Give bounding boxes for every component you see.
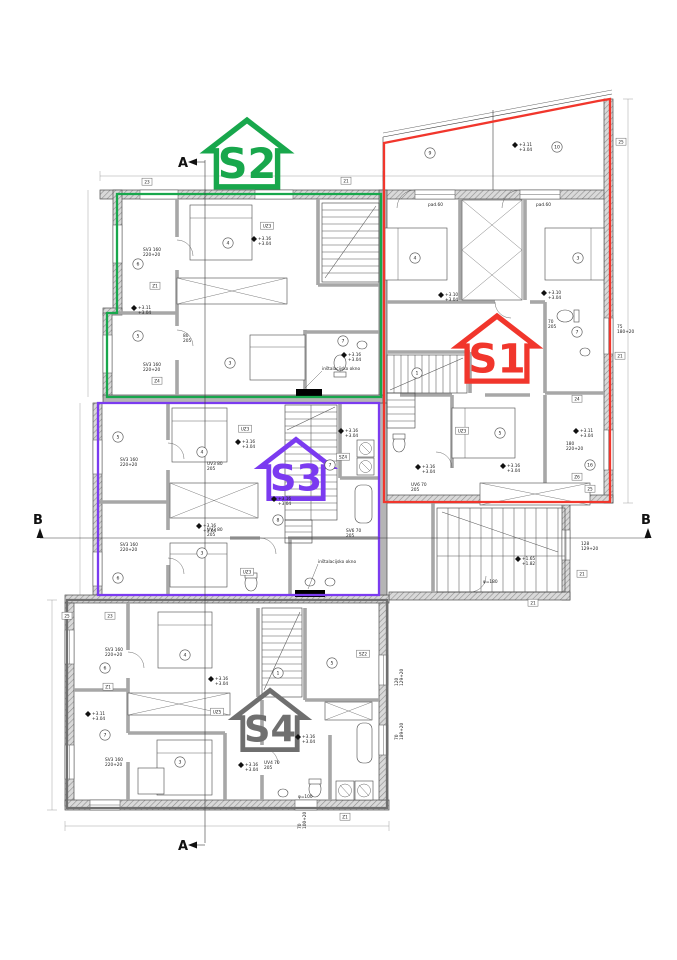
unit-marker-s4[interactable]: S4 [235, 690, 305, 750]
toilet [334, 355, 346, 377]
svg-text:S3: S3 [270, 457, 322, 500]
installation-shaft [296, 389, 322, 397]
annotation-label: φ=180 [483, 579, 498, 585]
elevation-mark-icon [131, 305, 137, 311]
toilet [393, 434, 405, 452]
bathtub [355, 485, 372, 523]
boxed-label: Z4 [154, 379, 160, 384]
annotation-label: inštalacijsko okno [318, 558, 356, 565]
room-number: 4 [201, 450, 204, 456]
room-number: 1 [277, 671, 280, 677]
wardrobe [177, 278, 287, 304]
room-number: 9 [429, 151, 432, 157]
washer [357, 458, 374, 475]
annotation-label: SV3 160220+20 [105, 647, 123, 658]
annotation-label: UV6 70205 [411, 482, 427, 493]
annotation-label: +3.16+3.04 [215, 676, 228, 687]
section-b-arrow-left [37, 528, 44, 538]
annotation-label: 75180+20 [617, 324, 635, 335]
annotation-label: +3.11+3.04 [580, 428, 593, 439]
annotation-label: UV3 80205 [207, 461, 223, 472]
annotation-label: SV3 160220+20 [120, 542, 138, 553]
washer [355, 781, 373, 800]
room-number: 3 [229, 361, 232, 367]
room-number: 7 [104, 733, 107, 739]
shower [138, 768, 164, 794]
annotation-label: +3.16+3.04 [345, 428, 358, 439]
room-number: 5 [499, 431, 502, 437]
annotation-label: SV3 160220+20 [143, 362, 161, 373]
annotation-label: +3.10+3.04 [445, 292, 458, 303]
annotation-label: +3.16+3.04 [245, 762, 258, 773]
room-number: 6 [137, 262, 140, 268]
room-number: 6 [117, 576, 120, 582]
room-number: 1 [416, 371, 419, 377]
toilet [557, 310, 579, 322]
room-number: 7 [329, 463, 332, 469]
room-number: 7 [342, 339, 345, 345]
stairs-common [437, 508, 565, 592]
annotation-label: 120129+20 [394, 668, 405, 686]
elevation-mark-icon [85, 711, 91, 717]
annotation-label: SV3 160220+20 [143, 247, 161, 258]
room-number: 5 [117, 435, 120, 441]
wardrobe [462, 200, 522, 300]
room-number: 5 [331, 661, 334, 667]
boxed-label: Z6 [574, 475, 580, 480]
annotation-label: UV3 80205 [207, 527, 223, 538]
annotation-label: SV3 160220+20 [105, 757, 123, 768]
bed [250, 335, 305, 380]
elevation-mark-icon [515, 556, 521, 562]
room-number: 8 [277, 518, 280, 524]
bathtub [357, 723, 372, 763]
svg-text:S2: S2 [218, 140, 277, 188]
washer [336, 781, 354, 800]
bed [157, 740, 212, 795]
unit-marker-s1[interactable]: S1 [458, 316, 535, 382]
boxed-label: Z1 [152, 284, 158, 289]
bed [190, 205, 252, 260]
boxed-label: 25 [587, 487, 593, 492]
annotation-label: +3.11+3.04 [138, 305, 151, 316]
elevation-mark-icon [208, 676, 214, 682]
section-a-label-top: A [178, 156, 188, 171]
sink [305, 578, 315, 586]
room-number: 4 [184, 653, 187, 659]
boxed-label: UZ3 [263, 224, 272, 229]
boxed-label: UZ3 [243, 570, 252, 575]
annotation-label: +3.16+3.04 [302, 734, 315, 745]
room-number: 10 [554, 145, 560, 151]
sink [580, 348, 590, 356]
room-number: 3 [201, 551, 204, 557]
furniture-layer [128, 190, 604, 800]
annotation-label: +3.16+3.04 [507, 463, 520, 474]
toilet [245, 573, 257, 591]
annotation-label: +1.65+1.82 [522, 556, 535, 567]
wardrobe [325, 702, 372, 720]
annotation-label: 70205 [548, 319, 556, 330]
elevation-mark-icon [235, 439, 241, 445]
boxed-label: 21 [579, 572, 585, 577]
annotation-label: +3.11+3.04 [519, 142, 532, 153]
room-number: 4 [227, 241, 230, 247]
annotation-label: 128129+20 [581, 541, 599, 552]
annotation-label: +3.16+3.04 [258, 236, 271, 247]
elevation-mark-icon [196, 523, 202, 529]
sink [278, 789, 288, 797]
section-a-arrow-top [188, 159, 197, 166]
boxed-label: 21 [617, 354, 623, 359]
elevation-mark-icon [438, 292, 444, 298]
section-b-label-left: B [33, 513, 43, 528]
annotation-label: SV3 160220+20 [120, 457, 138, 468]
stairs-s4 [262, 608, 302, 697]
boxed-label: 21 [530, 601, 536, 606]
sink [325, 578, 335, 586]
svg-text:S1: S1 [468, 334, 525, 382]
annotation-label: +3.16+3.04 [242, 439, 255, 450]
boxed-label: 25 [64, 614, 70, 619]
annotation-label: +3.16+3.04 [278, 496, 291, 507]
annotation-label: +3.16+3.04 [422, 464, 435, 475]
room-number: 6 [104, 666, 107, 672]
floor-plan-canvas: A A B B S2 S1 S3 S4 +3.11+3.04+3.16+3.04… [0, 0, 677, 960]
boxed-label: UZ3 [241, 427, 250, 432]
room-number: 5 [137, 334, 140, 340]
annotation-label: 80205 [183, 333, 191, 344]
room-number: 4 [414, 256, 417, 262]
room-number: 3 [179, 760, 182, 766]
annotation-label: 70189+20 [394, 722, 405, 740]
elevation-mark-icon [512, 142, 518, 148]
stairs-s2 [322, 203, 379, 282]
section-b-arrow-right [645, 528, 652, 538]
boxed-label: 23 [107, 614, 113, 619]
annotation-label: pad.60 [536, 202, 551, 208]
sink [357, 341, 367, 349]
section-a-arrow-bottom [188, 842, 197, 849]
boxed-label: Z1 [342, 815, 348, 820]
section-b-label-right: B [641, 513, 651, 528]
boxed-label: UZ3 [458, 429, 467, 434]
unit-marker-s3[interactable]: S3 [261, 439, 331, 499]
elevation-mark-icon [238, 762, 244, 768]
annotation-label: pad.60 [428, 202, 443, 208]
elevation-mark-icon [541, 290, 547, 296]
annotation-label: inštalacijsko okno [322, 365, 360, 372]
unit-marker-s2[interactable]: S2 [207, 120, 286, 188]
elevation-mark-icon [573, 428, 579, 434]
boxed-label: 24 [574, 397, 580, 402]
boxed-label: Z1 [105, 685, 111, 690]
svg-text:S4: S4 [244, 708, 296, 751]
boxed-label: SZ2 [359, 652, 368, 657]
annotation-label: +3.16+3.04 [348, 352, 361, 363]
section-a-label-bottom: A [178, 839, 188, 854]
annotation-label: 180220+20 [566, 441, 584, 452]
boxed-label: 23 [144, 180, 150, 185]
room-number: 16 [587, 463, 593, 469]
elevation-mark-icon [415, 464, 421, 470]
annotation-label: +3.11+3.04 [92, 711, 105, 722]
annotation-label: 70100+20 [297, 811, 308, 829]
annotation-label: UV4 70205 [264, 760, 280, 771]
boxed-label: 25 [618, 140, 624, 145]
floor-plan-page: A A B B S2 S1 S3 S4 +3.11+3.04+3.16+3.04… [0, 0, 677, 960]
room-number: 7 [576, 330, 579, 336]
washer [357, 440, 374, 457]
annotation-label: +3.10+3.04 [548, 290, 561, 301]
wardrobe [170, 483, 258, 518]
boxed-label: SZ4 [339, 455, 348, 460]
boxed-label: UZ5 [213, 710, 222, 715]
annotation-label: φ=100 [298, 794, 313, 800]
room-number: 3 [577, 256, 580, 262]
elevation-mark-icon [500, 463, 506, 469]
boxed-label: 21 [343, 179, 349, 184]
